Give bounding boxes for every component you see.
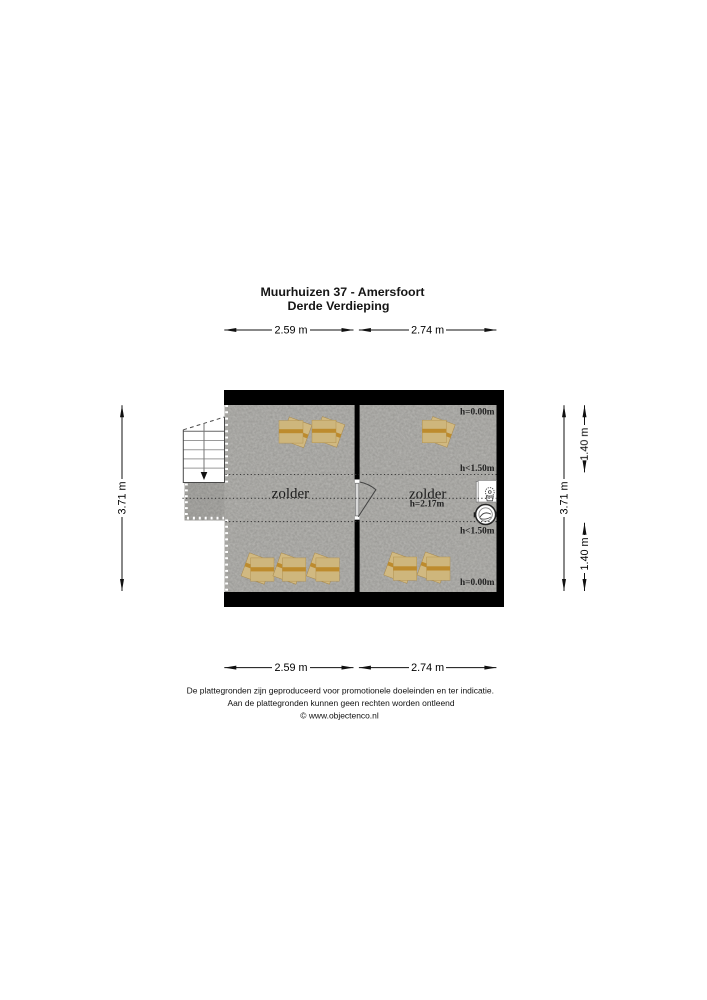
svg-text:h=2.17m: h=2.17m: [410, 500, 445, 510]
svg-text:h=0.00m: h=0.00m: [460, 407, 495, 417]
svg-text:2.59 m: 2.59 m: [274, 325, 307, 337]
svg-text:De plattegronden zijn geproduc: De plattegronden zijn geproduceerd voor …: [187, 685, 494, 695]
svg-text:© www.objectenco.nl: © www.objectenco.nl: [300, 710, 379, 720]
svg-text:2.74 m: 2.74 m: [411, 325, 444, 337]
svg-text:3.71 m: 3.71 m: [117, 481, 129, 514]
svg-text:h=0.00m: h=0.00m: [460, 578, 495, 588]
svg-text:3.71 m: 3.71 m: [559, 481, 571, 514]
svg-text:2.59 m: 2.59 m: [274, 662, 307, 674]
svg-text:zolder: zolder: [272, 486, 309, 502]
svg-text:Aan de plattegronden kunnen ge: Aan de plattegronden kunnen geen rechten…: [227, 698, 454, 708]
svg-text:h<1.50m: h<1.50m: [460, 464, 495, 474]
svg-text:1.40 m: 1.40 m: [579, 537, 591, 570]
svg-text:Derde Verdieping: Derde Verdieping: [288, 299, 390, 313]
svg-text:2.74 m: 2.74 m: [411, 662, 444, 674]
svg-text:h<1.50m: h<1.50m: [460, 527, 495, 537]
svg-text:1.40 m: 1.40 m: [579, 428, 591, 461]
svg-text:Muurhuizen 37 - Amersfoort: Muurhuizen 37 - Amersfoort: [260, 285, 424, 299]
